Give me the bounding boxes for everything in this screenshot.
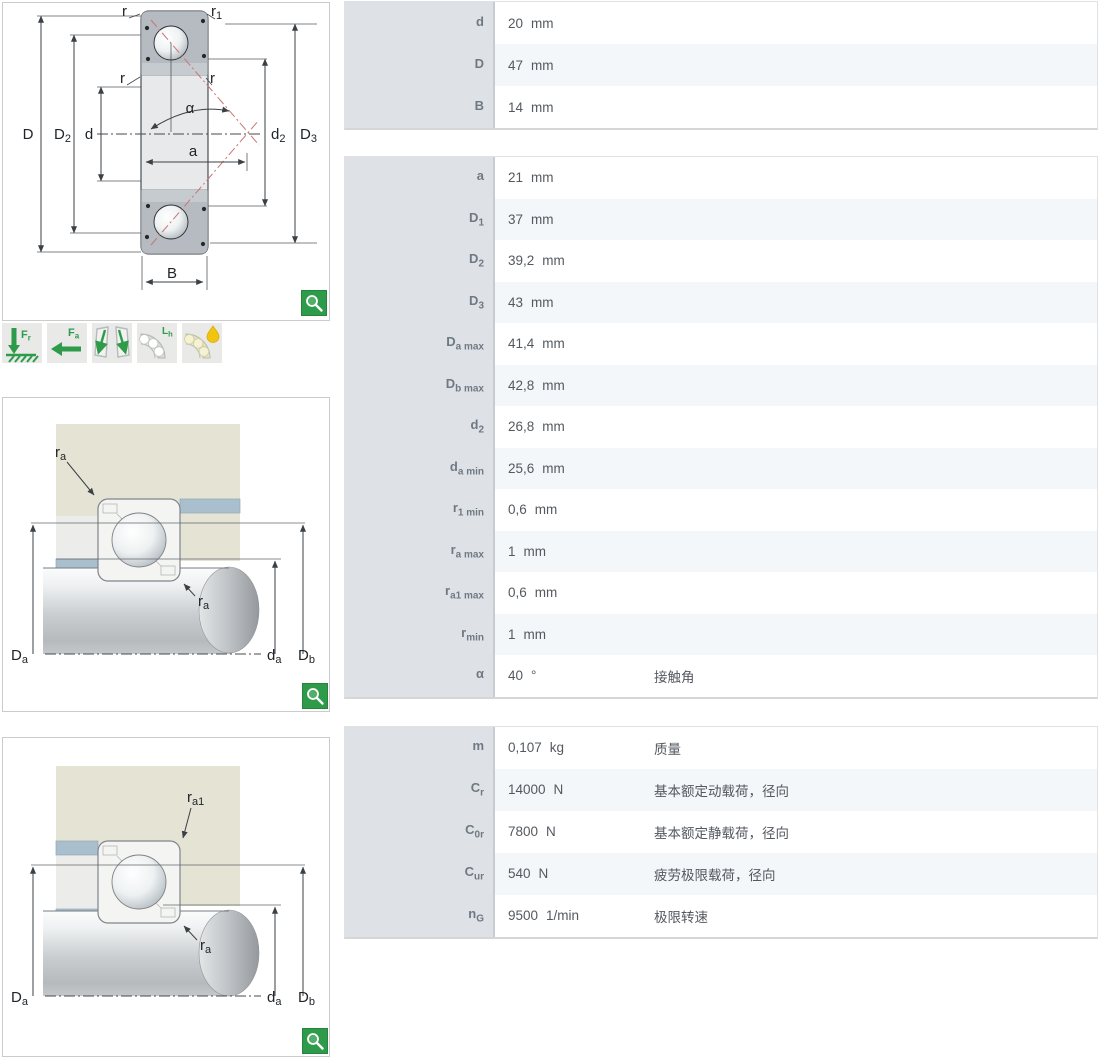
spec-value: 41,4 [508,336,534,351]
mounting-diagram-2: ra1 ra Da da Db [3,738,329,1056]
bearing [98,499,180,581]
spec-value-area: 0,107kg 质量 [495,727,1097,769]
spec-unit: N [539,866,549,881]
spec-description: 基本额定动载荷，径向 [654,780,789,800]
label-d: d [85,126,93,143]
spec-value: 0,6 [508,585,527,600]
spec-unit: mm [542,419,565,434]
mounting-diagram: ra ra Da da Db [3,398,329,711]
magnifier-icon [304,1030,326,1052]
spec-value-area: 41,4mm [495,323,1097,365]
oil-drop-icon [207,326,219,343]
spec-value-area: 26,8mm [495,406,1097,448]
spec-value-area: 37mm [495,199,1097,241]
spacer-ring [56,841,98,855]
table-main-dimensions: d 20mm D 47mm B 14mm [344,1,1098,130]
magnifier-icon [304,685,326,707]
zoom-in-button[interactable] [302,1028,328,1054]
spec-row: d 20mm [345,2,1097,44]
spec-unit: mm [542,378,565,393]
label-Da: Da [11,647,29,666]
spec-row: d2 26,8mm [345,406,1097,448]
spec-label: ra max [345,531,495,573]
lubrication-icon [182,323,222,363]
spec-value: 43 [508,295,523,310]
spec-row: Cr 14000N 基本额定动载荷，径向 [345,769,1097,811]
spec-unit: mm [531,295,554,310]
bearing-cross-section-drawing: D D2 d a d2 D3 B r r1 r r α [2,2,330,321]
spec-label: da min [345,448,495,490]
spec-value: 21 [508,170,523,185]
radial-load-icon: Fr [2,323,42,363]
spec-row: da min 25,6mm [345,448,1097,490]
spec-tables: d 20mm D 47mm B 14mm a 21mm [344,1,1098,939]
axial-load-icon: Fa [47,323,87,363]
spec-row: D1 37mm [345,199,1097,241]
label-Db: Db [298,989,315,1008]
spacer-ring [180,499,240,513]
spec-value: 39,2 [508,253,534,268]
spec-label: Cur [345,853,495,895]
spec-unit: 1/min [546,908,579,923]
spec-row: D 47mm [345,44,1097,86]
spec-label: Db max [345,365,495,407]
spec-value: 14 [508,100,523,115]
spec-row: Cur 540N 疲劳极限载荷，径向 [345,853,1097,895]
spec-label: D3 [345,282,495,324]
spec-row: Db max 42,8mm [345,365,1097,407]
spec-row: m 0,107kg 质量 [345,727,1097,769]
spec-value: 37 [508,212,523,227]
spec-value-area: 540N 疲劳极限载荷，径向 [495,853,1097,895]
label-D: D [23,126,34,143]
spec-description: 质量 [654,738,681,758]
label-da: da [267,989,282,1008]
spec-label: B [345,86,495,128]
svg-text:Lh: Lh [162,326,173,339]
spec-value-area: 20mm [495,2,1097,44]
svg-text:Fr: Fr [21,329,31,343]
spec-unit: N [554,782,564,797]
spec-unit: mm [531,100,554,115]
spec-unit: ° [531,668,536,683]
spec-unit: mm [531,16,554,31]
spec-value-area: 14000N 基本额定动载荷，径向 [495,769,1097,811]
spec-value: 1 [508,627,516,642]
label-r1: r1 [211,3,222,22]
spec-unit: N [546,824,556,839]
svg-text:Fa: Fa [68,327,80,341]
spec-label: D [345,44,495,86]
spec-value-area: 21mm [495,157,1097,199]
spec-value: 7800 [508,824,538,839]
spec-value-area: 43mm [495,282,1097,324]
spec-unit: mm [531,212,554,227]
spec-value-area: 0,6mm [495,572,1097,614]
spec-label: ra1 max [345,572,495,614]
label-D3: D3 [300,126,317,145]
spec-label: r1 min [345,489,495,531]
label-r-left: r [120,70,125,87]
mounting-dimensions-drawing: ra ra Da da Db [2,397,330,712]
spec-row: rmin 1mm [345,614,1097,656]
label-B: B [167,265,177,282]
mounting-dimensions-drawing-2: ra1 ra Da da Db [2,737,330,1057]
magnifier-icon [303,292,325,314]
spec-label: Cr [345,769,495,811]
spec-label: a [345,157,495,199]
spec-row: a 21mm [345,157,1097,199]
spec-row: nG 95001/min 极限转速 [345,895,1097,937]
spec-label: D1 [345,199,495,241]
spec-unit: mm [542,253,565,268]
spec-unit: mm [535,502,558,517]
spec-value: 20 [508,16,523,31]
spec-unit: kg [550,740,564,755]
zoom-in-button[interactable] [302,683,328,709]
spec-value: 47 [508,58,523,73]
spec-label: D2 [345,240,495,282]
spec-value-area: 7800N 基本额定静载荷，径向 [495,811,1097,853]
spec-value-area: 47mm [495,44,1097,86]
spec-row: D2 39,2mm [345,240,1097,282]
spec-unit: mm [542,461,565,476]
spec-unit: mm [542,336,565,351]
label-Da: Da [11,989,29,1008]
spec-unit: mm [524,544,547,559]
spec-description: 基本额定静载荷，径向 [654,822,789,842]
spec-label: Da max [345,323,495,365]
spec-value-area: 25,6mm [495,448,1097,490]
spec-unit: mm [531,58,554,73]
spec-label: rmin [345,614,495,656]
spec-label: d [345,2,495,44]
spec-value-area: 39,2mm [495,240,1097,282]
spec-unit: mm [531,170,554,185]
spec-row: C0r 7800N 基本额定静载荷，径向 [345,811,1097,853]
spec-description: 极限转速 [654,906,708,926]
spec-value-area: 95001/min 极限转速 [495,895,1097,937]
spec-value-area: 14mm [495,86,1097,128]
spec-value-area: 1mm [495,531,1097,573]
rating-life-icon: Lh [137,323,177,363]
spec-value-area: 1mm [495,614,1097,656]
spec-value-area: 42,8mm [495,365,1097,407]
spec-unit: mm [524,627,547,642]
spec-value: 0,107 [508,740,542,755]
label-a: a [189,143,198,160]
table-mounting-dimensions: a 21mm D1 37mm D2 39,2mm D3 43mm [344,156,1098,699]
spec-value: 40 [508,668,523,683]
spec-label: C0r [345,811,495,853]
spec-value: 14000 [508,782,546,797]
bearing-product-page: D D2 d a d2 D3 B r r1 r r α [0,0,1100,1059]
spec-value: 540 [508,866,531,881]
label-d2: d2 [271,126,285,145]
spec-value: 42,8 [508,378,534,393]
spec-value: 25,6 [508,461,534,476]
zoom-in-button[interactable] [301,290,327,316]
cross-section-diagram: D D2 d a d2 D3 B r r1 r r α [3,3,329,320]
spec-description: 疲劳极限载荷，径向 [654,864,776,884]
spec-label: nG [345,895,495,937]
spec-value: 26,8 [508,419,534,434]
label-da: da [267,647,282,666]
spec-row: B 14mm [345,86,1097,128]
spec-unit: mm [535,585,558,600]
spec-row: ra max 1mm [345,531,1097,573]
label-r-top: r [122,3,127,20]
feature-icons: Fr Fa [2,323,222,363]
table-performance-data: m 0,107kg 质量 Cr 14000N 基本额定动载荷，径向 C0r 78… [344,726,1098,939]
label-D2: D2 [54,126,71,145]
spec-value-area: 40° 接触角 [495,655,1097,697]
label-alpha: α [186,100,195,117]
spec-label: α [345,655,495,697]
spec-label: d2 [345,406,495,448]
spec-label: m [345,727,495,769]
spec-description: 接触角 [654,666,695,686]
label-Db: Db [298,647,315,666]
angular-misalignment-icon [92,323,132,363]
spec-value: 9500 [508,908,538,923]
spec-value-area: 0,6mm [495,489,1097,531]
spec-row: r1 min 0,6mm [345,489,1097,531]
spec-row: D3 43mm [345,282,1097,324]
label-r-right: r [210,70,215,87]
spec-row: Da max 41,4mm [345,323,1097,365]
spec-value: 0,6 [508,502,527,517]
spec-row: ra1 max 0,6mm [345,572,1097,614]
bearing [98,841,180,923]
spec-row: α 40° 接触角 [345,655,1097,697]
spec-value: 1 [508,544,516,559]
